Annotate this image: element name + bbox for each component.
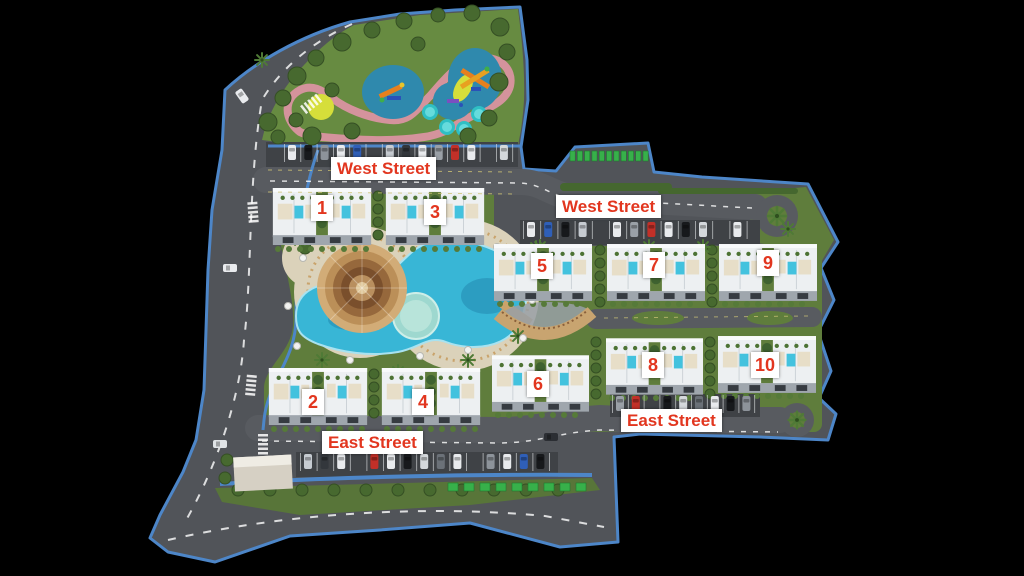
street-label-west-right: West Street bbox=[556, 195, 661, 218]
street-label-west-left: West Street bbox=[331, 157, 436, 180]
parking-west-right bbox=[520, 220, 760, 245]
building-badge-3: 3 bbox=[424, 199, 446, 225]
street-label-east-left: East Street bbox=[322, 431, 423, 454]
building-badge-10: 10 bbox=[751, 352, 779, 378]
site-office-building bbox=[233, 455, 293, 492]
site-plan-map bbox=[0, 0, 1024, 576]
building-badge-2: 2 bbox=[302, 389, 324, 415]
building-badge-7: 7 bbox=[643, 252, 665, 278]
site-plan: West Street West Street East Street East… bbox=[0, 0, 1024, 576]
street-label-east-right: East Street bbox=[621, 409, 722, 432]
building-badge-9: 9 bbox=[757, 250, 779, 276]
building-badge-6: 6 bbox=[527, 371, 549, 397]
building-badge-1: 1 bbox=[311, 195, 333, 221]
circular-deck bbox=[317, 243, 407, 333]
building-badge-5: 5 bbox=[531, 253, 553, 279]
building-badge-8: 8 bbox=[642, 352, 664, 378]
building-badge-4: 4 bbox=[412, 389, 434, 415]
